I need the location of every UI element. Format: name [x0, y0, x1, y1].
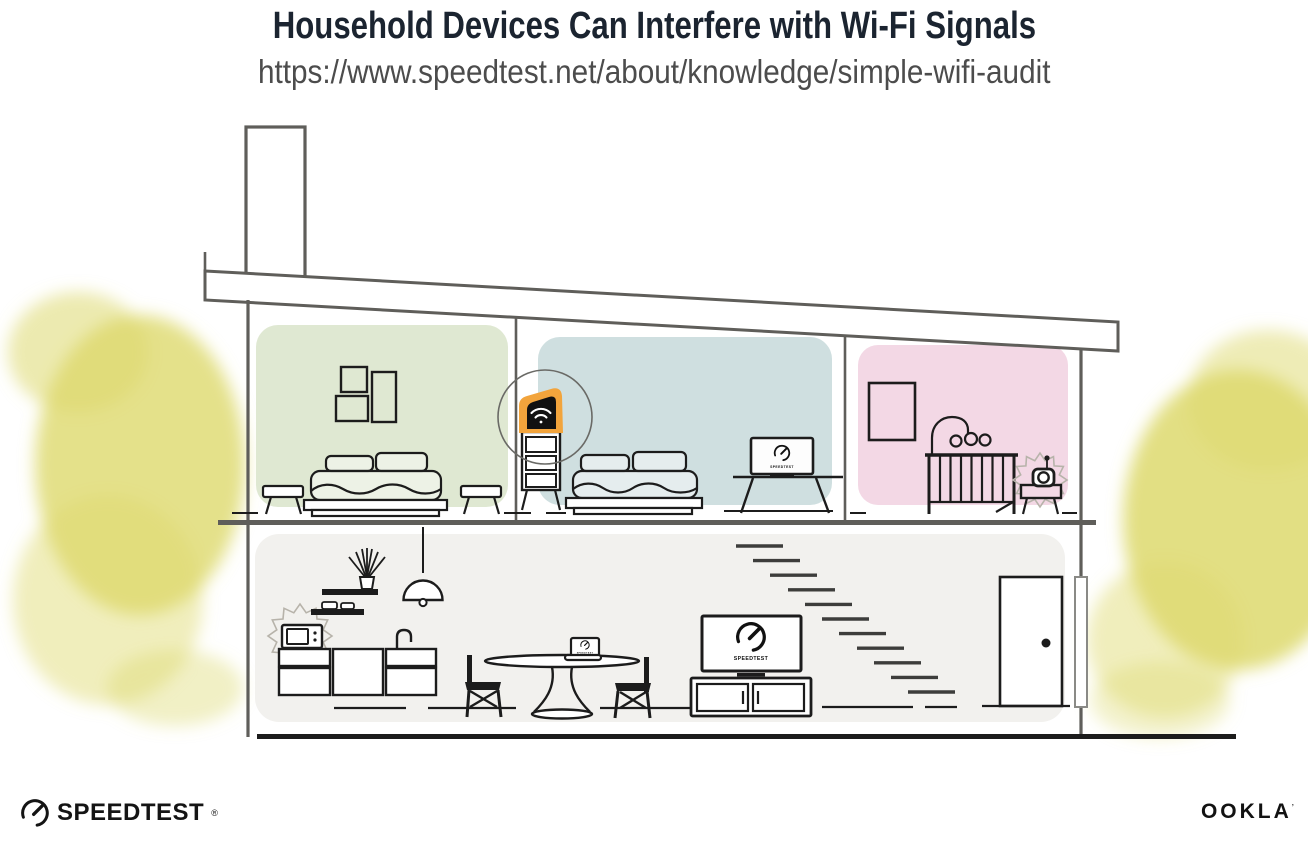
bed-blue	[566, 452, 702, 514]
living-tv: SPEEDTEST	[702, 616, 801, 677]
tree-left	[8, 292, 245, 726]
living-room: SPEEDTEST	[691, 616, 811, 716]
speedtest-logo: SPEEDTEST®	[20, 798, 218, 828]
bedroom-tv: SPEEDTEST	[751, 438, 813, 478]
microwave	[282, 625, 322, 648]
tree-right	[1087, 330, 1308, 738]
floor-divider	[218, 520, 1096, 525]
media-console	[691, 678, 811, 716]
ookla-mark: ʼ	[1292, 804, 1294, 815]
registered-mark: ®	[211, 808, 218, 818]
ground-line	[257, 734, 1236, 739]
laptop: SPEEDTEST	[565, 638, 601, 660]
infographic-stage: Household Devices Can Interfere with Wi-…	[0, 0, 1308, 861]
chimney	[246, 127, 305, 278]
bowl	[341, 603, 354, 609]
bowl	[322, 602, 337, 609]
bedroom-tv-screen-label: SPEEDTEST	[770, 465, 794, 469]
page-title: Household Devices Can Interfere with Wi-…	[272, 4, 1035, 50]
drainpipe	[1075, 577, 1087, 707]
speedtest-gauge-icon	[20, 798, 50, 828]
bed-green	[304, 453, 447, 516]
house-illustration: SPEEDTEST	[0, 0, 1308, 861]
speedtest-wordmark: SPEEDTEST	[57, 799, 204, 827]
kitchen-cabinets	[279, 649, 436, 695]
header: Household Devices Can Interfere with Wi-…	[0, 4, 1308, 91]
front-door	[1000, 577, 1062, 706]
living-tv-screen-label: SPEEDTEST	[734, 656, 769, 662]
ookla-wordmark: OOKLA	[1201, 800, 1292, 823]
page-url: https://www.speedtest.net/about/knowledg…	[258, 52, 1050, 92]
ookla-logo: OOKLAʼ	[1201, 800, 1294, 824]
door-knob	[1042, 639, 1051, 648]
